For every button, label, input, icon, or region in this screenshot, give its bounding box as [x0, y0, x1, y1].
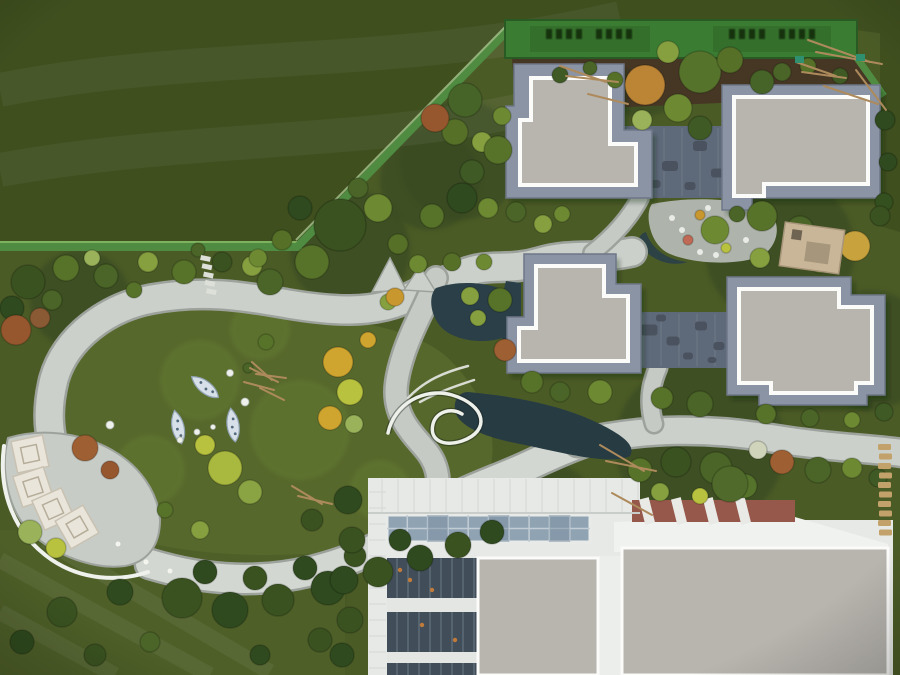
aerial-garden-photograph: [0, 0, 900, 675]
vignette-overlay: [0, 0, 900, 675]
aerial-photo-canvas: [0, 0, 900, 675]
photo-vignette: [0, 0, 900, 675]
